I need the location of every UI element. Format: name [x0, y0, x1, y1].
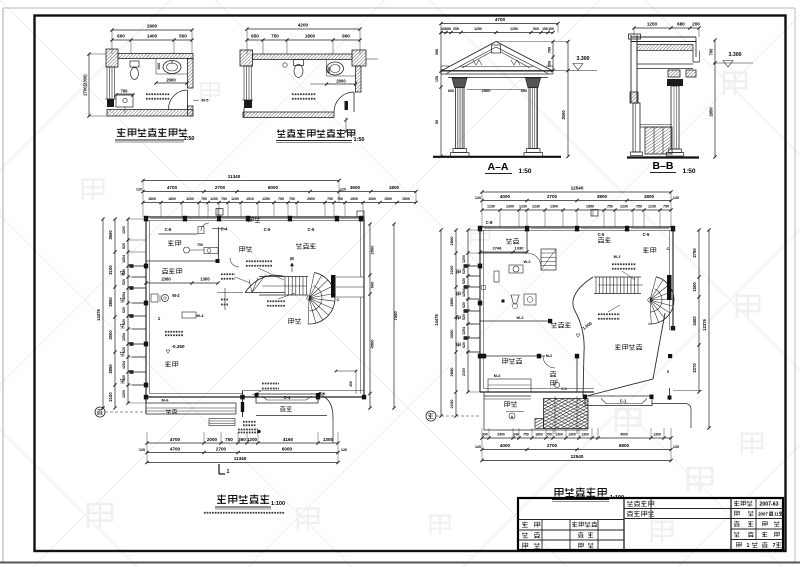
svg-text:2000: 2000 — [336, 79, 346, 84]
svg-text:620: 620 — [122, 347, 126, 353]
svg-text:3000: 3000 — [108, 330, 113, 340]
svg-text:2000: 2000 — [207, 437, 218, 442]
svg-text:2850: 2850 — [449, 367, 454, 377]
svg-text:C-6: C-6 — [165, 227, 172, 232]
svg-text:950: 950 — [326, 66, 331, 73]
svg-text:620: 620 — [122, 269, 126, 275]
svg-text:1400: 1400 — [147, 34, 158, 39]
svg-text:3.300: 3.300 — [577, 56, 590, 62]
svg-text:2400: 2400 — [497, 433, 505, 437]
svg-text:1: 1 — [227, 469, 230, 475]
svg-text:M-4: M-4 — [197, 313, 205, 318]
svg-text:2007-63: 2007-63 — [759, 502, 778, 508]
svg-text:1254: 1254 — [122, 255, 126, 263]
svg-text:1:50: 1:50 — [183, 136, 194, 142]
svg-text:600: 600 — [156, 62, 161, 69]
svg-text:1254: 1254 — [462, 289, 466, 297]
svg-text:1500: 1500 — [368, 197, 376, 201]
svg-text:1200: 1200 — [231, 197, 239, 201]
svg-text:600: 600 — [448, 89, 454, 93]
svg-text:500: 500 — [179, 34, 187, 39]
svg-text:1250: 1250 — [262, 197, 270, 201]
svg-text:620: 620 — [122, 307, 126, 313]
svg-text:240: 240 — [513, 433, 519, 437]
svg-text:750: 750 — [327, 197, 333, 201]
svg-text:6800: 6800 — [619, 443, 630, 448]
svg-text:200: 200 — [692, 22, 700, 27]
svg-text:1330: 1330 — [515, 246, 525, 251]
svg-text:1230: 1230 — [648, 205, 656, 209]
svg-text:1200: 1200 — [186, 197, 194, 201]
svg-text:750: 750 — [546, 433, 552, 437]
svg-text:12540: 12540 — [571, 186, 584, 191]
svg-text:C-1: C-1 — [284, 395, 291, 400]
svg-text:3600: 3600 — [108, 230, 113, 240]
svg-text:520: 520 — [462, 278, 466, 284]
svg-text:450: 450 — [349, 381, 353, 387]
svg-text:4700: 4700 — [170, 437, 181, 442]
svg-text:520: 520 — [122, 243, 126, 249]
svg-text:2100: 2100 — [449, 399, 454, 409]
svg-text:150: 150 — [445, 27, 451, 31]
svg-text:520: 520 — [462, 314, 466, 320]
svg-text:1200: 1200 — [247, 437, 258, 442]
svg-text:2700: 2700 — [216, 447, 227, 452]
svg-text:2700(2300): 2700(2300) — [83, 74, 88, 96]
svg-text:2000: 2000 — [166, 78, 176, 83]
svg-text:150: 150 — [435, 76, 439, 82]
svg-text:散水: 散水 — [319, 391, 326, 396]
svg-text:700: 700 — [121, 89, 129, 94]
svg-text:1800: 1800 — [305, 34, 316, 39]
svg-text:1254: 1254 — [122, 333, 126, 341]
svg-text:11: 11 — [774, 512, 779, 517]
svg-text:M-5: M-5 — [202, 98, 210, 103]
svg-text:1:50: 1:50 — [353, 137, 364, 143]
svg-text:2360: 2360 — [161, 277, 171, 282]
svg-text:4700: 4700 — [167, 185, 178, 190]
svg-text:2700: 2700 — [547, 443, 558, 448]
svg-text:12376: 12376 — [702, 319, 707, 331]
svg-text:2100: 2100 — [108, 392, 113, 402]
svg-text:1510: 1510 — [246, 197, 254, 201]
svg-text:120: 120 — [475, 196, 481, 200]
svg-text:4200: 4200 — [298, 23, 309, 28]
svg-text:360: 360 — [238, 437, 246, 442]
svg-text:C-5: C-5 — [643, 232, 650, 237]
svg-text:500: 500 — [533, 27, 539, 31]
svg-text:680: 680 — [677, 22, 685, 27]
svg-text:750: 750 — [289, 197, 295, 201]
svg-text:M-6: M-6 — [162, 398, 170, 403]
svg-text:120: 120 — [341, 448, 347, 452]
svg-text:B–B: B–B — [652, 160, 673, 172]
svg-text:900: 900 — [370, 281, 375, 288]
svg-text:1300: 1300 — [323, 437, 334, 442]
svg-text:2750: 2750 — [692, 248, 697, 258]
svg-text:W-2: W-2 — [524, 260, 531, 264]
svg-text:2850: 2850 — [449, 297, 454, 307]
svg-text:1254: 1254 — [462, 327, 466, 335]
svg-text:1:100: 1:100 — [271, 501, 285, 507]
svg-text:C-5: C-5 — [308, 227, 315, 232]
svg-text:2900: 2900 — [147, 24, 158, 29]
svg-text:4500: 4500 — [370, 339, 375, 349]
svg-text:600: 600 — [117, 34, 125, 39]
svg-text:3000: 3000 — [561, 110, 566, 120]
svg-text:1200: 1200 — [647, 22, 658, 27]
svg-text:C-4: C-4 — [221, 227, 228, 232]
svg-text:620: 620 — [462, 302, 466, 308]
svg-text:M-2: M-2 — [546, 354, 552, 358]
svg-text:1200: 1200 — [122, 390, 126, 398]
svg-text:12540: 12540 — [571, 454, 584, 459]
svg-text:1230: 1230 — [487, 205, 495, 209]
svg-text:300: 300 — [435, 49, 439, 55]
svg-text:3600: 3600 — [350, 185, 361, 190]
svg-text:2100: 2100 — [462, 368, 466, 376]
svg-text:1254: 1254 — [122, 361, 126, 369]
svg-text:14476: 14476 — [96, 309, 101, 321]
svg-text:520: 520 — [122, 319, 126, 325]
svg-text:4000: 4000 — [500, 194, 511, 199]
svg-text:3400: 3400 — [692, 316, 697, 326]
svg-text:750: 750 — [271, 34, 279, 39]
svg-text:120: 120 — [139, 448, 145, 452]
svg-text:520: 520 — [122, 279, 126, 285]
svg-text:11340: 11340 — [228, 174, 241, 179]
svg-text:1500: 1500 — [350, 197, 358, 201]
svg-text:7: 7 — [773, 543, 776, 549]
svg-text:1300: 1300 — [653, 433, 661, 437]
svg-text:620: 620 — [462, 268, 466, 274]
svg-text:5: 5 — [667, 370, 669, 374]
svg-text:120: 120 — [673, 445, 679, 449]
svg-text:C-5: C-5 — [598, 232, 605, 237]
svg-text:4700: 4700 — [495, 17, 506, 22]
svg-text:1230: 1230 — [620, 205, 628, 209]
svg-text:W-2: W-2 — [614, 255, 621, 259]
svg-text:250: 250 — [453, 27, 459, 31]
svg-text:750: 750 — [636, 205, 642, 209]
svg-text:1300: 1300 — [550, 205, 558, 209]
svg-text:11340: 11340 — [234, 456, 247, 461]
svg-text:50: 50 — [435, 120, 439, 124]
svg-text:750: 750 — [225, 437, 233, 442]
svg-text:1800: 1800 — [644, 194, 655, 199]
svg-text:3800: 3800 — [597, 194, 608, 199]
svg-text:C-1: C-1 — [620, 399, 627, 404]
svg-text:1200: 1200 — [210, 197, 218, 201]
svg-text:1230: 1230 — [532, 205, 540, 209]
svg-text:4000: 4000 — [500, 443, 511, 448]
svg-text:2850: 2850 — [108, 297, 113, 307]
svg-text:2007: 2007 — [758, 512, 768, 517]
svg-text:1500: 1500 — [384, 197, 392, 201]
svg-text:1300: 1300 — [506, 205, 514, 209]
svg-text:2500: 2500 — [482, 88, 492, 93]
svg-text:750: 750 — [201, 197, 207, 201]
svg-text:-0.250: -0.250 — [171, 344, 184, 349]
svg-text:4700: 4700 — [170, 447, 181, 452]
svg-text:750: 750 — [221, 197, 227, 201]
svg-text:1800: 1800 — [168, 197, 176, 201]
svg-text:2800: 2800 — [449, 236, 454, 246]
svg-text:1250: 1250 — [510, 27, 518, 31]
svg-text:2850: 2850 — [108, 364, 113, 374]
svg-text:120: 120 — [673, 196, 679, 200]
svg-text:1300: 1300 — [200, 277, 210, 282]
svg-text:1:50: 1:50 — [682, 168, 695, 175]
svg-text:750: 750 — [663, 205, 669, 209]
svg-text:7500: 7500 — [393, 311, 398, 321]
svg-text:1800: 1800 — [535, 433, 543, 437]
svg-text:300: 300 — [548, 61, 552, 67]
svg-text:750: 750 — [337, 197, 343, 201]
svg-text:M-2: M-2 — [172, 293, 180, 298]
svg-text:3000: 3000 — [449, 329, 454, 339]
svg-text:1500: 1500 — [402, 197, 410, 201]
svg-text:2370: 2370 — [692, 363, 697, 373]
svg-text:C-5: C-5 — [264, 227, 271, 232]
svg-text:700: 700 — [709, 48, 714, 56]
svg-text:520: 520 — [122, 375, 126, 381]
svg-text:2100: 2100 — [449, 265, 454, 275]
svg-text:2500: 2500 — [370, 245, 375, 255]
svg-text:6000: 6000 — [268, 185, 279, 190]
svg-text:C: C — [337, 297, 340, 302]
svg-text:120: 120 — [136, 188, 142, 192]
svg-text:750: 750 — [607, 205, 613, 209]
svg-text:120: 120 — [475, 445, 481, 449]
svg-text:C-8: C-8 — [486, 220, 493, 225]
svg-text:2700: 2700 — [547, 194, 558, 199]
svg-text:W-2: W-2 — [517, 316, 524, 320]
svg-text:2700: 2700 — [215, 185, 226, 190]
svg-text:1250: 1250 — [474, 27, 482, 31]
svg-text:M-4: M-4 — [494, 374, 501, 378]
svg-text:4160: 4160 — [283, 437, 294, 442]
svg-text:1230: 1230 — [519, 205, 527, 209]
svg-text:1: 1 — [747, 543, 750, 549]
svg-text:14476: 14476 — [434, 314, 439, 326]
svg-text:700: 700 — [548, 47, 552, 53]
svg-text:3.300: 3.300 — [729, 52, 742, 58]
svg-text:120: 120 — [340, 188, 346, 192]
svg-text:1:50: 1:50 — [518, 168, 531, 175]
svg-text:1800: 1800 — [389, 185, 400, 190]
svg-text:1200: 1200 — [122, 226, 126, 234]
svg-text:1300: 1300 — [581, 433, 589, 437]
svg-text:1200: 1200 — [462, 255, 466, 263]
svg-text:150: 150 — [542, 27, 548, 31]
svg-text:C: C — [667, 246, 670, 251]
svg-text:1800: 1800 — [148, 197, 156, 201]
svg-text:900: 900 — [342, 34, 350, 39]
svg-text:650: 650 — [251, 34, 259, 39]
svg-text:750: 750 — [278, 197, 284, 201]
svg-text:6000: 6000 — [282, 447, 293, 452]
svg-text:A–A: A–A — [487, 161, 508, 173]
svg-text:1850: 1850 — [586, 205, 594, 209]
svg-text:620: 620 — [462, 342, 466, 348]
svg-text:300: 300 — [482, 433, 488, 437]
svg-text:750: 750 — [523, 433, 529, 437]
svg-text:1300: 1300 — [568, 433, 576, 437]
svg-text:1300: 1300 — [555, 433, 563, 437]
svg-text:C-1: C-1 — [561, 387, 567, 391]
svg-text:4500: 4500 — [620, 433, 628, 437]
svg-text:2100: 2100 — [108, 265, 113, 275]
svg-text:100: 100 — [548, 27, 554, 31]
svg-text:2500: 2500 — [307, 197, 315, 201]
svg-text:2850: 2850 — [709, 107, 714, 117]
svg-text:750: 750 — [197, 243, 203, 247]
svg-text:2748: 2748 — [493, 246, 503, 251]
svg-text:1500: 1500 — [692, 282, 697, 292]
